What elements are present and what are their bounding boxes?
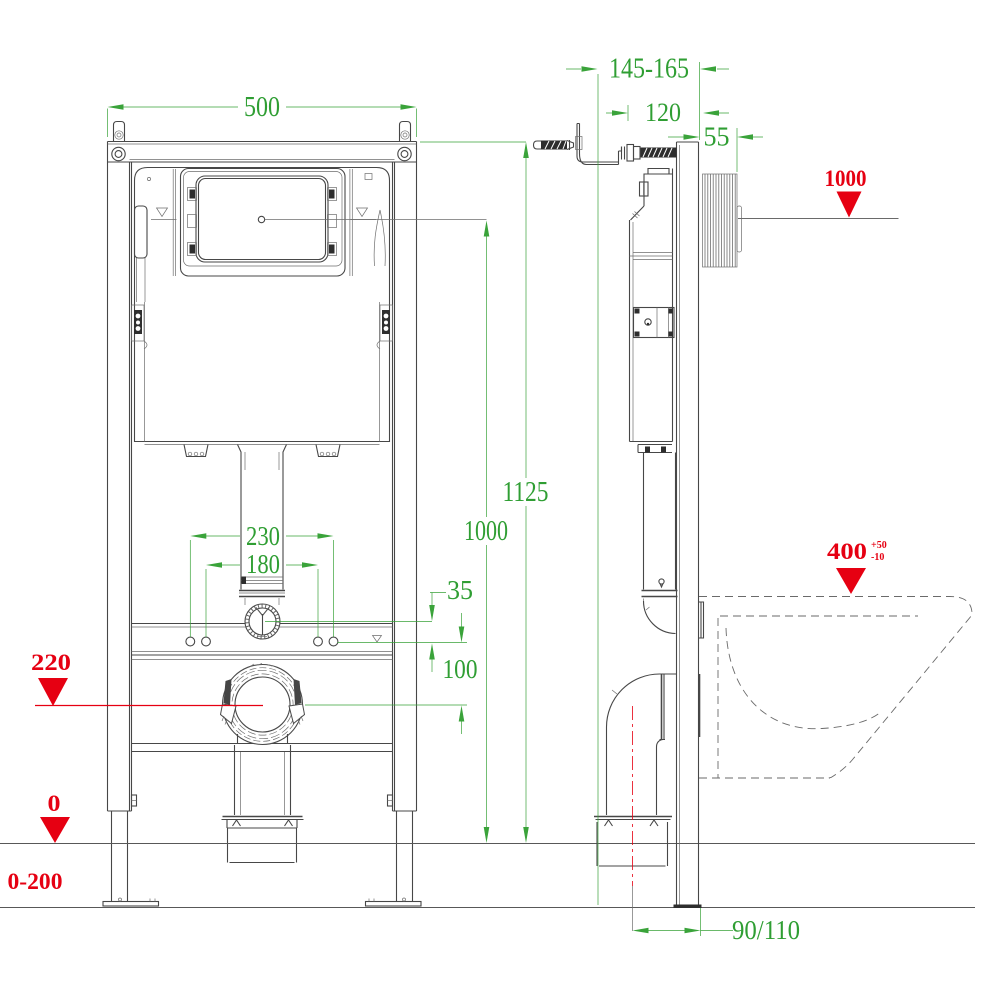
svg-text:230: 230: [246, 521, 280, 551]
svg-text:500: 500: [244, 92, 280, 123]
svg-text:1000: 1000: [464, 515, 508, 547]
svg-text:1125: 1125: [503, 476, 549, 508]
svg-text:220: 220: [31, 650, 71, 675]
svg-text:1000: 1000: [825, 166, 867, 191]
svg-text:-10: -10: [871, 552, 884, 563]
svg-text:400: 400: [827, 539, 867, 564]
svg-text:90/110: 90/110: [732, 915, 800, 945]
svg-text:100: 100: [443, 654, 478, 684]
svg-text:0: 0: [48, 791, 61, 816]
svg-text:+50: +50: [871, 540, 887, 551]
svg-text:55: 55: [704, 122, 730, 152]
svg-text:120: 120: [645, 98, 681, 127]
svg-text:0-200: 0-200: [8, 869, 63, 894]
svg-text:180: 180: [246, 549, 280, 579]
svg-text:145-165: 145-165: [609, 53, 689, 85]
svg-text:35: 35: [447, 575, 473, 605]
